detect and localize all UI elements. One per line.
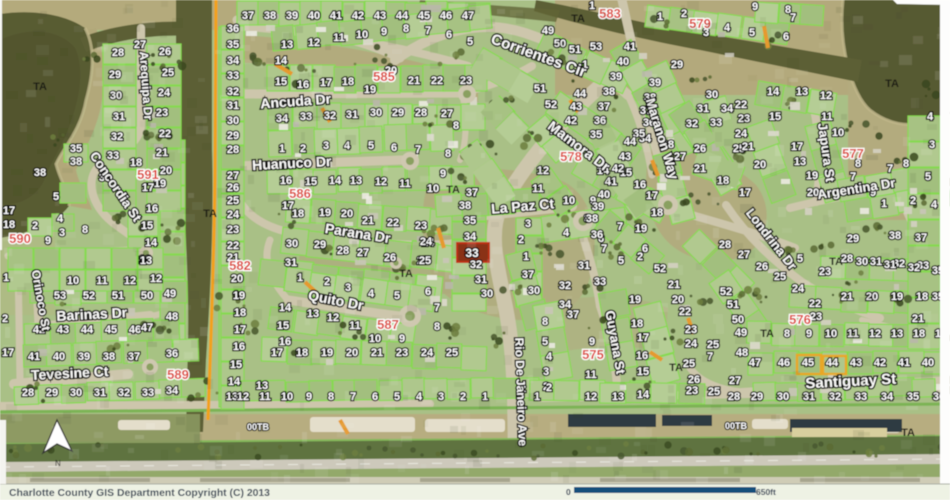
- svg-text:11: 11: [585, 369, 597, 381]
- svg-text:30: 30: [370, 107, 382, 119]
- svg-text:32: 32: [470, 259, 482, 271]
- svg-text:15: 15: [769, 111, 781, 123]
- svg-text:29: 29: [314, 239, 326, 251]
- svg-text:18: 18: [631, 318, 643, 330]
- svg-text:22: 22: [227, 240, 239, 252]
- svg-text:11: 11: [821, 111, 833, 123]
- svg-text:47: 47: [141, 322, 153, 334]
- svg-text:32: 32: [829, 391, 841, 403]
- svg-text:30: 30: [481, 288, 493, 300]
- svg-text:46: 46: [129, 324, 141, 336]
- svg-text:11: 11: [349, 320, 361, 332]
- svg-text:25: 25: [683, 358, 695, 370]
- svg-text:16: 16: [233, 341, 245, 353]
- svg-text:19: 19: [321, 347, 333, 359]
- svg-text:12: 12: [308, 37, 320, 49]
- svg-text:33: 33: [227, 70, 239, 82]
- svg-text:21: 21: [668, 279, 680, 291]
- svg-text:26: 26: [694, 143, 706, 155]
- svg-text:23: 23: [156, 107, 168, 119]
- svg-text:17: 17: [234, 324, 246, 336]
- svg-text:41: 41: [330, 10, 342, 22]
- svg-text:45: 45: [418, 10, 430, 22]
- svg-text:2: 2: [518, 234, 524, 246]
- svg-text:27: 27: [441, 108, 453, 120]
- svg-text:6: 6: [391, 142, 397, 154]
- svg-text:23: 23: [685, 324, 697, 336]
- svg-text:31: 31: [227, 100, 239, 112]
- svg-text:9: 9: [752, 1, 758, 13]
- svg-text:2: 2: [637, 251, 643, 263]
- svg-text:43: 43: [619, 151, 631, 163]
- svg-text:13: 13: [612, 391, 624, 403]
- svg-text:28: 28: [337, 245, 349, 257]
- svg-text:28: 28: [415, 107, 427, 119]
- svg-text:37: 37: [522, 269, 534, 281]
- svg-text:17: 17: [646, 190, 658, 202]
- svg-text:4: 4: [927, 111, 934, 123]
- svg-text:32: 32: [118, 387, 130, 399]
- svg-text:24: 24: [227, 209, 240, 221]
- svg-text:22: 22: [431, 75, 443, 87]
- svg-text:27: 27: [729, 375, 741, 387]
- svg-text:23: 23: [686, 385, 698, 397]
- svg-text:20: 20: [346, 347, 358, 359]
- svg-text:22: 22: [809, 298, 821, 310]
- svg-text:1: 1: [589, 0, 595, 12]
- svg-text:45: 45: [802, 357, 814, 369]
- svg-text:6: 6: [446, 29, 452, 41]
- svg-text:19: 19: [806, 170, 818, 182]
- svg-text:37: 37: [598, 101, 610, 113]
- svg-text:12: 12: [585, 391, 597, 403]
- svg-text:19: 19: [635, 223, 647, 235]
- svg-text:25: 25: [419, 255, 431, 267]
- svg-text:5: 5: [925, 171, 931, 183]
- svg-text:585: 585: [373, 69, 395, 84]
- svg-text:34: 34: [881, 391, 894, 403]
- svg-text:3: 3: [525, 218, 531, 230]
- svg-text:30: 30: [70, 387, 82, 399]
- svg-text:20: 20: [754, 159, 766, 171]
- svg-text:21: 21: [694, 163, 706, 175]
- svg-text:20: 20: [341, 208, 353, 220]
- svg-text:53: 53: [590, 41, 602, 53]
- svg-text:38: 38: [889, 230, 901, 242]
- svg-text:47: 47: [749, 357, 761, 369]
- svg-text:18: 18: [234, 307, 246, 319]
- svg-text:18: 18: [3, 219, 15, 231]
- svg-text:10: 10: [427, 183, 439, 195]
- svg-text:Charlotte County GIS Departmen: Charlotte County GIS Department Copyrigh…: [9, 488, 270, 499]
- svg-text:5: 5: [749, 27, 755, 39]
- svg-text:8: 8: [434, 321, 440, 333]
- svg-text:10: 10: [67, 275, 79, 287]
- svg-text:31: 31: [285, 257, 297, 269]
- svg-text:34: 34: [227, 55, 240, 67]
- svg-text:52: 52: [654, 263, 666, 275]
- svg-text:35: 35: [590, 129, 602, 141]
- svg-text:10: 10: [281, 391, 293, 403]
- svg-text:28: 28: [227, 144, 239, 156]
- svg-text:14: 14: [279, 302, 292, 314]
- svg-text:50: 50: [732, 314, 744, 326]
- svg-text:8: 8: [445, 148, 451, 160]
- svg-text:28: 28: [112, 47, 124, 59]
- svg-text:2: 2: [32, 220, 38, 232]
- svg-text:31: 31: [475, 274, 487, 286]
- svg-text:15: 15: [141, 220, 153, 232]
- svg-text:33: 33: [594, 276, 606, 288]
- svg-text:8: 8: [403, 23, 409, 35]
- svg-text:591: 591: [137, 167, 159, 182]
- svg-text:39: 39: [78, 351, 90, 363]
- svg-text:12: 12: [150, 273, 162, 285]
- svg-text:15: 15: [637, 366, 649, 378]
- svg-text:29: 29: [227, 130, 239, 142]
- svg-text:43: 43: [57, 324, 69, 336]
- svg-text:TA: TA: [885, 78, 899, 90]
- svg-text:15: 15: [230, 359, 242, 371]
- svg-text:44: 44: [826, 357, 839, 369]
- svg-text:17: 17: [142, 182, 154, 194]
- svg-text:6: 6: [372, 391, 378, 403]
- svg-text:650ft: 650ft: [756, 487, 776, 497]
- svg-text:TA: TA: [901, 427, 915, 439]
- svg-text:22: 22: [735, 99, 747, 111]
- svg-text:N: N: [55, 459, 61, 468]
- svg-text:582: 582: [229, 258, 251, 273]
- svg-text:52: 52: [545, 99, 557, 111]
- svg-text:11: 11: [399, 178, 411, 190]
- svg-text:30: 30: [286, 238, 298, 250]
- svg-text:28: 28: [22, 387, 34, 399]
- svg-text:35: 35: [464, 215, 476, 227]
- svg-text:16: 16: [297, 79, 309, 91]
- svg-text:40: 40: [53, 351, 65, 363]
- svg-text:37: 37: [466, 187, 478, 199]
- svg-text:40: 40: [617, 56, 629, 68]
- svg-text:21: 21: [742, 141, 754, 153]
- svg-text:34: 34: [721, 103, 734, 115]
- svg-text:18: 18: [292, 208, 304, 220]
- svg-text:2: 2: [910, 195, 916, 207]
- svg-text:13: 13: [350, 175, 362, 187]
- svg-text:577: 577: [842, 146, 864, 161]
- svg-text:3: 3: [323, 140, 329, 152]
- svg-text:25: 25: [708, 386, 720, 398]
- svg-text:4: 4: [724, 22, 731, 34]
- svg-text:5: 5: [368, 140, 374, 152]
- svg-text:27: 27: [227, 170, 239, 182]
- svg-text:14: 14: [275, 55, 288, 67]
- svg-text:36: 36: [166, 348, 178, 360]
- svg-text:16: 16: [634, 179, 646, 191]
- svg-text:TA: TA: [829, 256, 843, 268]
- svg-text:32: 32: [908, 262, 920, 274]
- svg-text:22: 22: [679, 306, 691, 318]
- svg-text:41: 41: [624, 41, 636, 53]
- svg-text:24: 24: [158, 87, 171, 99]
- svg-text:38: 38: [264, 10, 276, 22]
- svg-text:37: 37: [128, 351, 140, 363]
- svg-text:8: 8: [542, 316, 548, 328]
- svg-text:2: 2: [2, 313, 8, 325]
- svg-text:10: 10: [825, 328, 837, 340]
- svg-text:38: 38: [34, 167, 46, 179]
- svg-text:5: 5: [618, 255, 624, 267]
- svg-text:20: 20: [231, 273, 243, 285]
- svg-text:44: 44: [396, 10, 409, 22]
- svg-text:6: 6: [425, 286, 431, 298]
- svg-text:29: 29: [392, 107, 404, 119]
- svg-text:21: 21: [371, 347, 383, 359]
- svg-text:13: 13: [891, 328, 903, 340]
- svg-text:18: 18: [913, 328, 925, 340]
- svg-text:26: 26: [756, 261, 768, 273]
- svg-text:1: 1: [523, 251, 529, 263]
- svg-text:51: 51: [112, 290, 124, 302]
- svg-text:35: 35: [907, 391, 919, 403]
- svg-text:14: 14: [228, 376, 241, 388]
- svg-text:32: 32: [559, 280, 571, 292]
- svg-text:10: 10: [369, 333, 381, 345]
- svg-text:9: 9: [806, 328, 812, 340]
- svg-text:TA: TA: [203, 208, 217, 220]
- svg-text:11: 11: [259, 391, 271, 403]
- svg-text:00TB: 00TB: [725, 421, 748, 431]
- svg-text:49: 49: [164, 288, 176, 300]
- svg-text:19: 19: [891, 291, 903, 303]
- svg-text:9: 9: [45, 235, 51, 247]
- svg-text:5: 5: [467, 36, 473, 48]
- svg-text:35: 35: [70, 143, 82, 155]
- svg-text:38: 38: [103, 351, 115, 363]
- svg-text:TA: TA: [446, 184, 460, 196]
- svg-text:23: 23: [396, 347, 408, 359]
- svg-text:TA: TA: [571, 13, 585, 25]
- svg-text:23: 23: [810, 311, 822, 323]
- svg-text:24: 24: [420, 236, 433, 248]
- svg-text:35: 35: [227, 39, 239, 51]
- svg-text:30: 30: [856, 256, 868, 268]
- svg-text:25: 25: [707, 339, 719, 351]
- svg-text:7: 7: [617, 221, 623, 233]
- svg-text:12: 12: [869, 328, 881, 340]
- svg-text:21: 21: [408, 75, 420, 87]
- svg-text:33: 33: [465, 246, 479, 260]
- svg-text:590: 590: [9, 231, 31, 246]
- svg-text:38: 38: [459, 200, 471, 212]
- svg-text:2: 2: [546, 382, 552, 394]
- svg-text:5: 5: [394, 391, 400, 403]
- svg-text:29: 29: [847, 233, 859, 245]
- svg-text:39: 39: [610, 71, 622, 83]
- svg-text:46: 46: [440, 10, 452, 22]
- svg-text:20: 20: [672, 294, 684, 306]
- svg-text:586: 586: [289, 186, 311, 201]
- svg-text:22: 22: [387, 217, 399, 229]
- svg-text:13: 13: [256, 380, 268, 392]
- svg-text:1: 1: [881, 198, 887, 210]
- svg-text:30: 30: [528, 285, 540, 297]
- svg-text:28: 28: [719, 239, 731, 251]
- svg-text:1: 1: [279, 143, 285, 155]
- svg-text:13: 13: [140, 255, 152, 267]
- svg-text:17: 17: [271, 347, 283, 359]
- svg-text:24: 24: [421, 347, 434, 359]
- svg-text:38: 38: [603, 86, 615, 98]
- svg-text:8: 8: [903, 158, 909, 170]
- svg-text:10: 10: [356, 29, 368, 41]
- svg-text:17: 17: [791, 141, 803, 153]
- svg-text:40: 40: [922, 357, 934, 369]
- svg-text:33: 33: [855, 391, 867, 403]
- svg-text:5: 5: [394, 290, 400, 302]
- svg-text:44: 44: [81, 324, 94, 336]
- svg-text:51: 51: [534, 83, 546, 95]
- svg-text:11: 11: [532, 183, 544, 195]
- svg-text:26: 26: [159, 46, 171, 58]
- svg-text:31: 31: [870, 256, 882, 268]
- svg-text:18: 18: [916, 291, 928, 303]
- svg-text:TA: TA: [669, 362, 683, 374]
- svg-text:24: 24: [735, 128, 748, 140]
- svg-text:27: 27: [357, 247, 369, 259]
- svg-text:25: 25: [227, 195, 239, 207]
- svg-text:17: 17: [739, 187, 751, 199]
- svg-text:51: 51: [727, 299, 739, 311]
- svg-text:19: 19: [629, 294, 641, 306]
- svg-text:17: 17: [320, 77, 332, 89]
- svg-text:28: 28: [728, 391, 740, 403]
- svg-text:31: 31: [94, 387, 106, 399]
- svg-text:13: 13: [281, 39, 293, 51]
- svg-text:11: 11: [96, 275, 108, 287]
- svg-text:7: 7: [601, 243, 607, 255]
- svg-text:8: 8: [328, 391, 334, 403]
- svg-text:15: 15: [275, 76, 287, 88]
- svg-text:6: 6: [783, 31, 789, 43]
- svg-text:30: 30: [706, 89, 718, 101]
- svg-text:8: 8: [453, 120, 459, 132]
- svg-text:30: 30: [227, 115, 239, 127]
- svg-text:12: 12: [375, 176, 387, 188]
- svg-text:53: 53: [54, 290, 66, 302]
- svg-text:52: 52: [83, 290, 95, 302]
- svg-text:8: 8: [82, 224, 88, 236]
- svg-text:30: 30: [777, 391, 789, 403]
- svg-text:9: 9: [306, 391, 312, 403]
- svg-text:9: 9: [440, 168, 446, 180]
- svg-text:29: 29: [671, 59, 683, 71]
- svg-text:4: 4: [368, 288, 375, 300]
- svg-text:3: 3: [438, 391, 444, 403]
- svg-text:13: 13: [796, 86, 808, 98]
- svg-text:0: 0: [566, 487, 571, 497]
- svg-text:40: 40: [598, 189, 610, 201]
- svg-text:8: 8: [785, 4, 791, 16]
- svg-text:576: 576: [789, 312, 811, 327]
- svg-text:23: 23: [415, 220, 427, 232]
- svg-text:44: 44: [624, 136, 637, 148]
- svg-text:44: 44: [574, 88, 587, 100]
- svg-text:40: 40: [308, 10, 320, 22]
- svg-text:48: 48: [736, 347, 748, 359]
- svg-text:26: 26: [384, 252, 396, 264]
- svg-text:17: 17: [3, 205, 15, 217]
- svg-text:43: 43: [570, 101, 582, 113]
- svg-text:33: 33: [107, 150, 119, 162]
- svg-text:42: 42: [874, 357, 886, 369]
- svg-text:24: 24: [685, 338, 698, 350]
- svg-text:14: 14: [329, 175, 342, 187]
- svg-text:2: 2: [300, 143, 306, 155]
- svg-text:12: 12: [327, 312, 339, 324]
- svg-text:7: 7: [434, 302, 440, 314]
- svg-text:32: 32: [227, 86, 239, 98]
- svg-text:52: 52: [720, 286, 732, 298]
- svg-text:15: 15: [277, 320, 289, 332]
- svg-text:36: 36: [591, 229, 603, 241]
- svg-text:7: 7: [415, 144, 421, 156]
- svg-text:33: 33: [142, 387, 154, 399]
